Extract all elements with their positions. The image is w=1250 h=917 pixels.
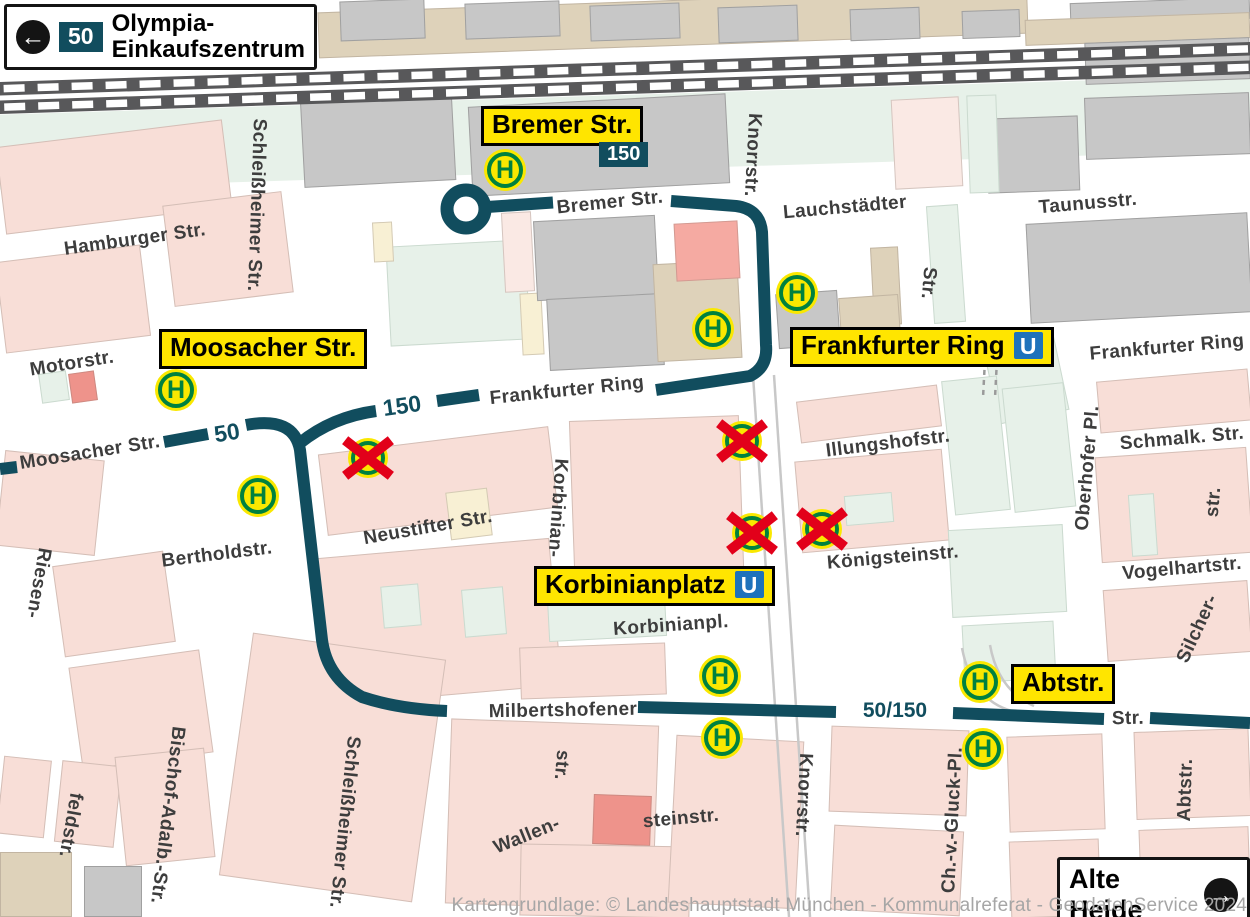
route-150-badge: 150 [599,142,648,167]
cancelled-stop-icon [732,513,772,553]
bus-stop-letter: H [704,317,722,342]
street-label-lauchstaedter-str: Str. [916,266,941,300]
stop-label-text: Moosacher Str. [170,333,356,363]
bus-stop-icon: H [962,728,1004,770]
stop-label-text: Frankfurter Ring [801,331,1005,361]
route-terminus-loop [447,190,485,228]
stop-label-abtstr: Abtstr. [1011,664,1115,704]
stop-label-bremer-str: Bremer Str. [481,106,643,146]
stop-label-moosacher-str: Moosacher Str. [159,329,367,369]
bus-stop-letter: H [167,378,185,403]
bus-stop-letter: H [713,726,731,751]
bus-stop-icon: H [692,308,734,350]
destination-line2: Einkaufszentrum [112,36,305,63]
destination-line1: Olympia- [112,10,215,37]
bus-stop-letter: H [249,484,267,509]
cancelled-stop-icon [348,438,388,478]
ubahn-icon: U [1014,332,1043,359]
route-number-150: 150 [381,390,423,422]
bus-route-line [0,201,1250,723]
bus-stop-icon: H [155,369,197,411]
cancelled-stop-icon [722,421,762,461]
street-label-str-right: str. [1202,486,1227,518]
destination-text: Olympia- Einkaufszentrum [112,11,305,63]
street-label-knorrstr-top: Knorrstr. [739,113,765,198]
transit-map: H H H H H H H H H Hamburger Str. Schleiß… [0,0,1250,917]
street-label-knorrstr-bottom: Knorrstr. [790,753,816,838]
street-label-str-bottom: str. [549,749,574,781]
street-label-abtstr-vertical: Abtstr. [1174,758,1198,822]
cancelled-stop-icon [802,509,842,549]
bus-stop-icon: H [701,717,743,759]
route-number-50: 50 [212,418,242,449]
route-number-50-150: 50/150 [863,699,927,723]
bus-stop-icon: H [776,272,818,314]
arrow-left-icon: ← [16,20,50,54]
bus-stop-letter: H [974,737,992,762]
bus-stop-icon: H [699,655,741,697]
map-attribution: Kartengrundlage: © Landeshauptstadt Münc… [451,895,1247,917]
route-50-badge: 50 [59,22,103,51]
stop-label-frankfurter-ring: Frankfurter Ring U [790,327,1054,367]
bus-stop-letter: H [971,670,989,695]
direction-sign-olympia: ← 50 Olympia- Einkaufszentrum [4,4,317,70]
stop-label-text: Korbinianplatz [545,570,726,600]
bus-stop-letter: H [788,281,806,306]
stop-label-text: Bremer Str. [492,110,632,140]
stop-label-korbinianplatz: Korbinianplatz U [534,566,775,606]
bus-stop-letter: H [711,664,729,689]
stop-label-text: Abtstr. [1022,668,1104,698]
street-label-milbertshofener: Milbertshofener [489,699,638,724]
bus-stop-icon: H [484,149,526,191]
bus-stop-icon: H [959,661,1001,703]
street-label-milbertshofener-str: Str. [1112,708,1145,731]
bus-stop-icon: H [237,475,279,517]
bus-stop-letter: H [496,158,514,183]
ubahn-icon: U [735,571,764,598]
